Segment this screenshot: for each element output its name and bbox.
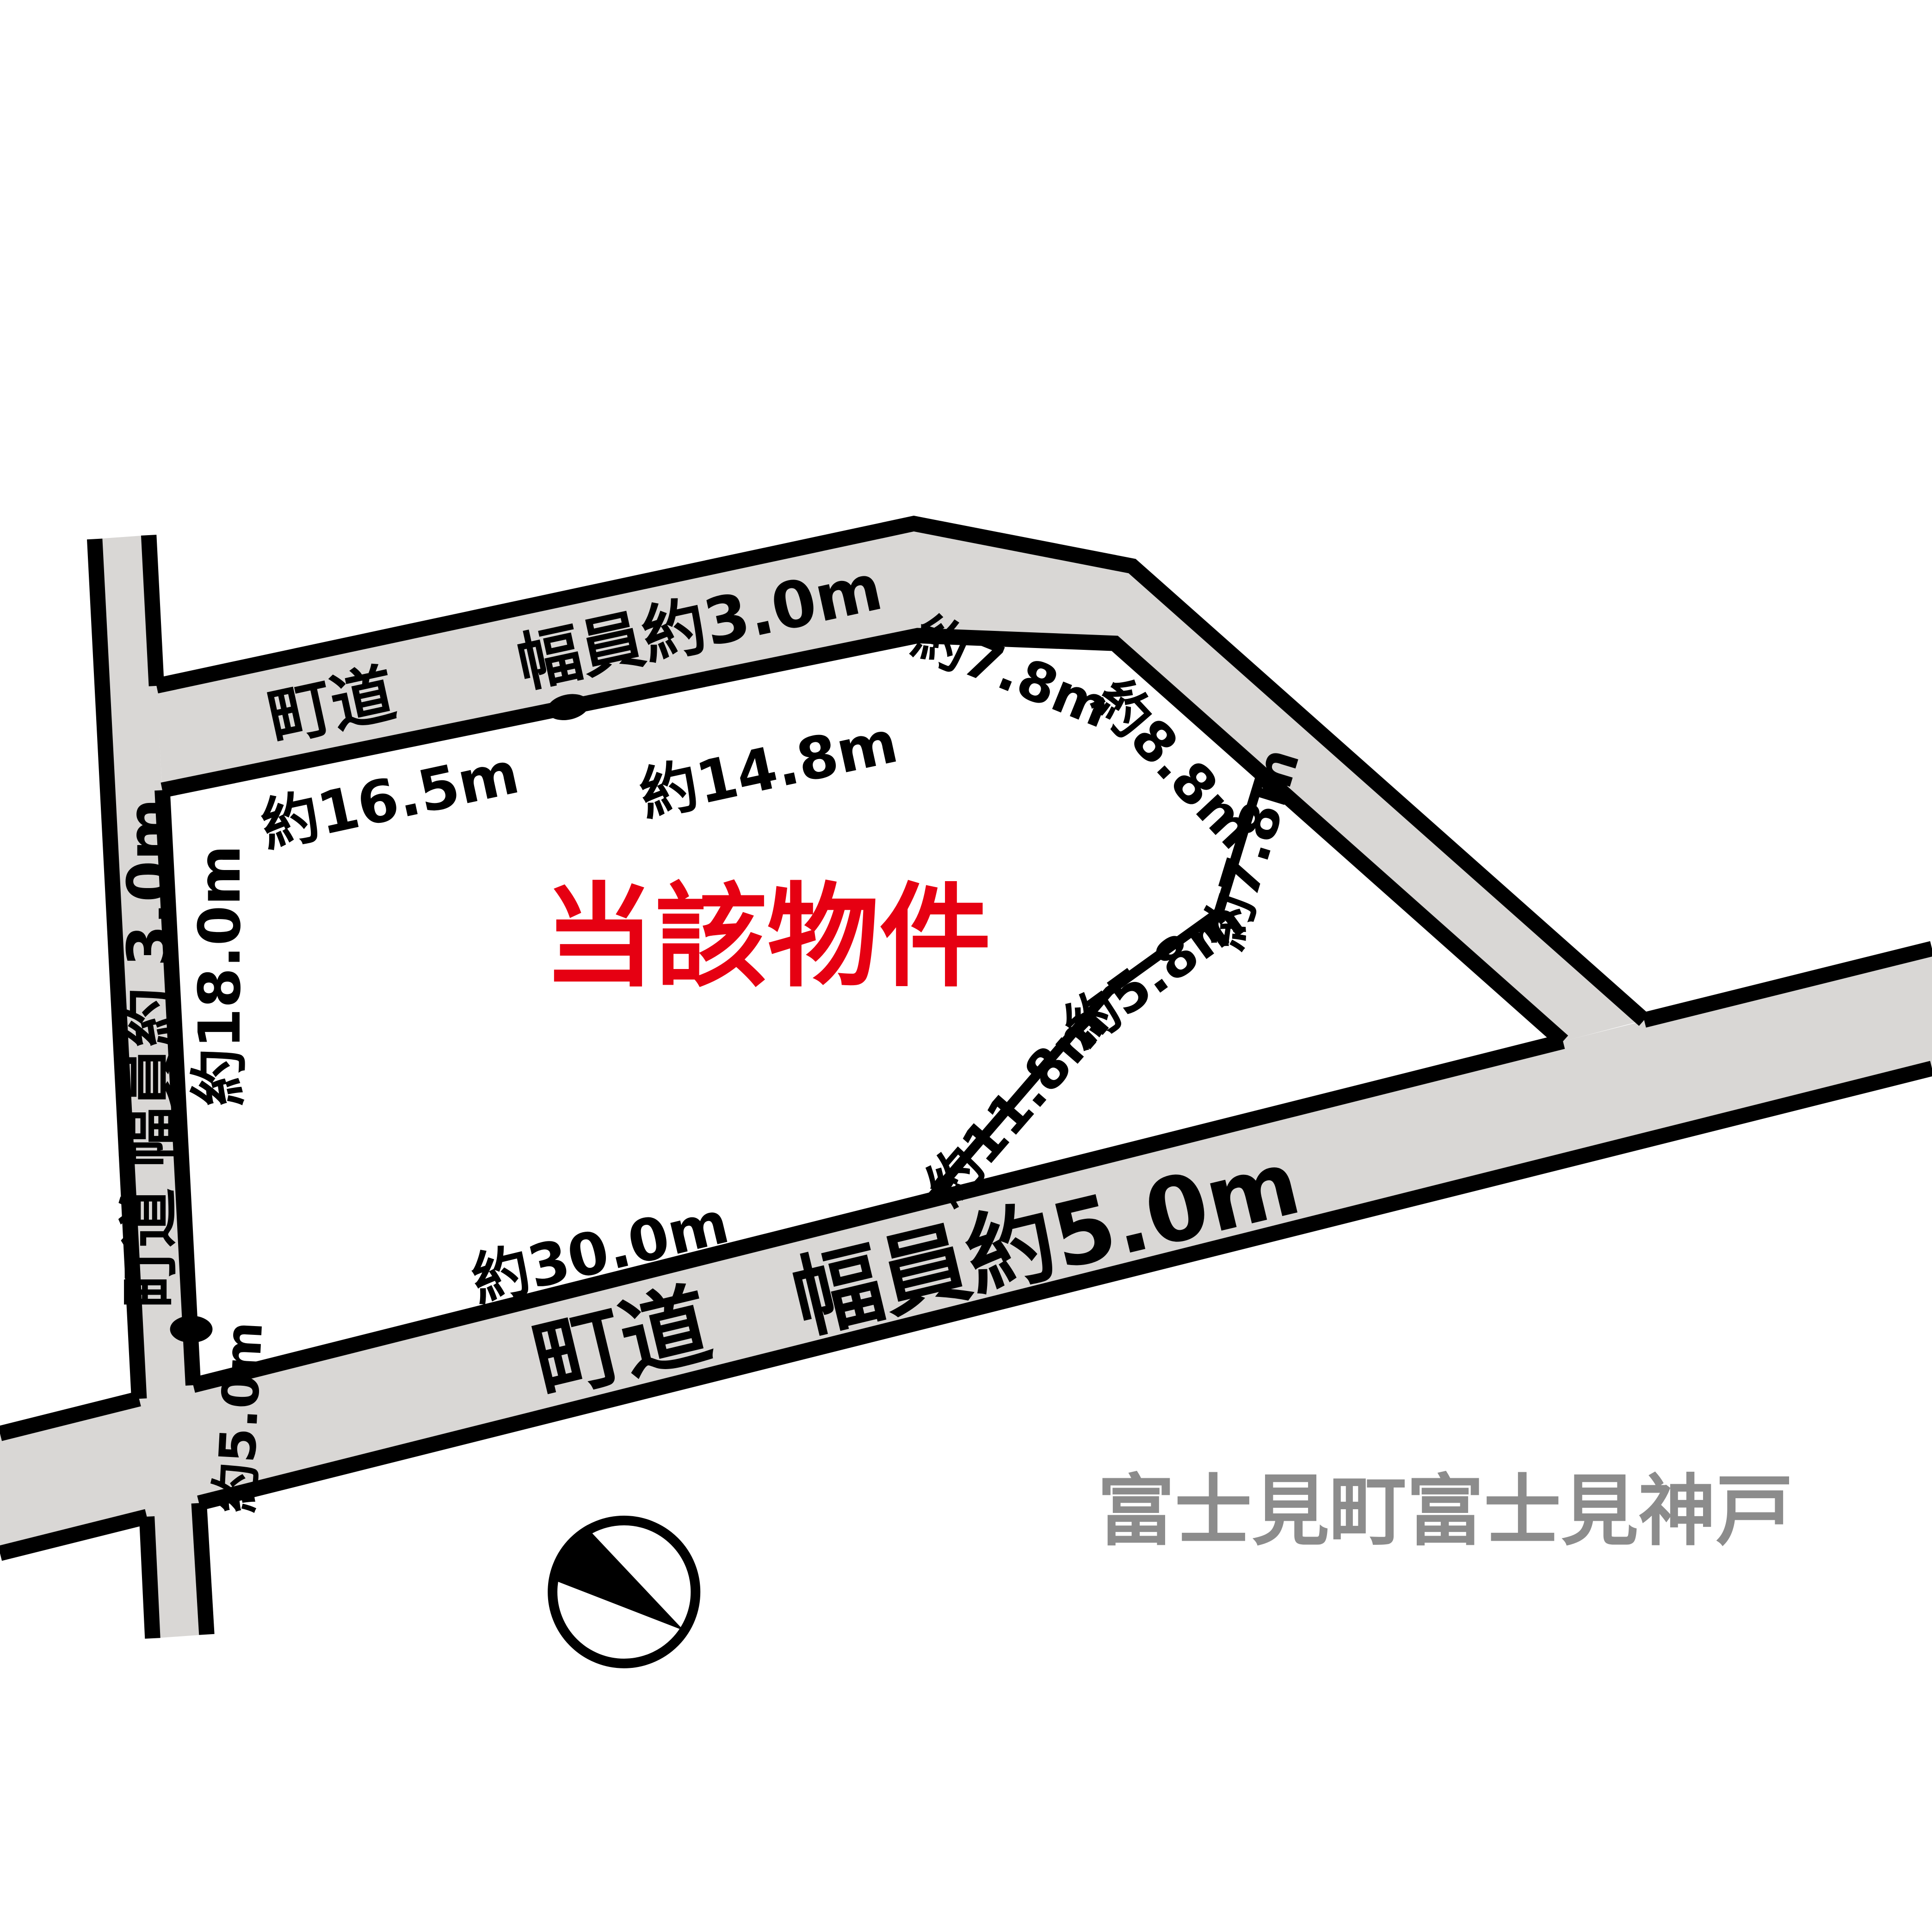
left-road-label: 町道 幅員約 3.0m	[115, 798, 185, 1308]
dim-west: 約18.0m	[186, 845, 253, 1106]
dim-west-2: 約5.0m	[205, 1320, 274, 1514]
north-compass-icon	[553, 1520, 696, 1663]
area-name-label: 富士見町富士見神戸	[1098, 1467, 1793, 1556]
dim-top-right: 約14.8m	[634, 708, 903, 830]
site-plan-diagram: 町道 幅員約3.0m 町道 幅員約 3.0m 町道 幅員約5.0m 約16.5m…	[0, 0, 1932, 1932]
boundary-dot-left	[170, 1316, 213, 1343]
subject-property-label: 当該物件	[543, 872, 991, 1002]
